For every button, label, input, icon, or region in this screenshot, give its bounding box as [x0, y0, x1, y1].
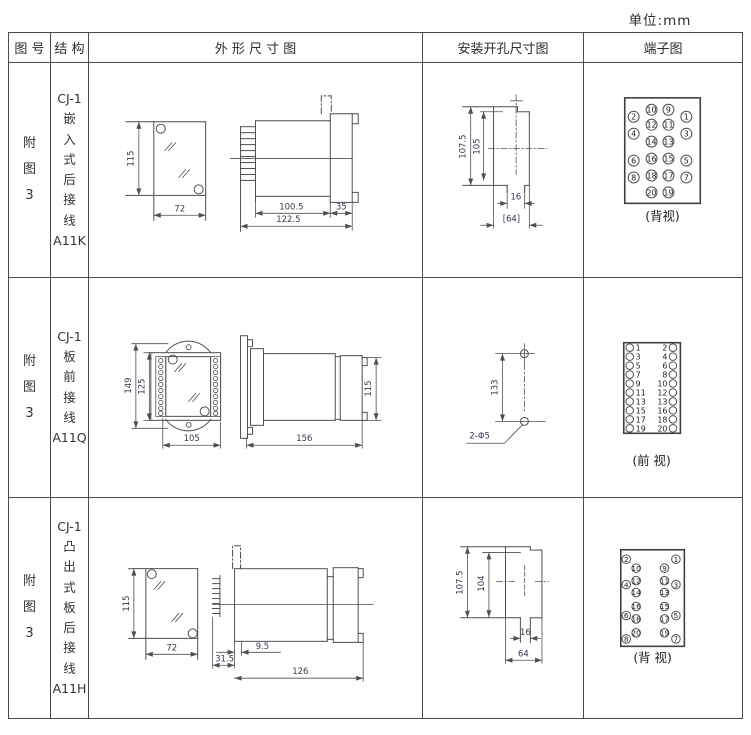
row3-outline-diagram: 115 72: [89, 498, 422, 718]
pin-number: 8: [631, 173, 636, 182]
centerline-bracket: [321, 96, 331, 114]
dim-label-133: 133: [490, 379, 500, 395]
pin-number: 20: [657, 424, 667, 433]
pin-number: 9: [662, 564, 667, 573]
dim-label-9-5: 9.5: [256, 641, 269, 651]
pin-number: 19: [636, 424, 646, 433]
terminal-pins: 2 1 10 9 12 11 4 3 14 13 16 15 6 5 18 17: [622, 555, 680, 644]
dim-label-107-5: 107.5: [458, 135, 468, 159]
dim-label-115: 115: [125, 150, 135, 166]
dim-label-72: 72: [174, 203, 185, 213]
dim-label-72: 72: [166, 642, 177, 652]
pin-number: 15: [636, 406, 646, 415]
terminal-block-outline: [621, 550, 685, 647]
row3-structure: CJ-1 凸 出 式 板 后 接 线 A11H: [51, 498, 89, 719]
row3-side-view: 9.5 31.5 126: [213, 546, 374, 681]
row1-install-diagram: 107.5 105 16 [64]: [423, 63, 583, 277]
row2-holes-view: 133 2-Φ5: [467, 344, 546, 444]
row3-install-cell: 107.5 104 16 64: [423, 498, 584, 719]
dim-label-115: 115: [363, 380, 373, 396]
row3-cutout-view: 107.5 104 16 64: [455, 547, 548, 663]
pin-comb-icon: [213, 579, 220, 614]
dim-label-105: 105: [184, 433, 200, 443]
pin-number: 5: [674, 611, 679, 620]
pin-number: 12: [647, 121, 657, 130]
row3-install-diagram: 107.5 104 16 64: [423, 498, 583, 718]
screw-hole-icon: [200, 407, 209, 416]
pin-number: 4: [624, 580, 629, 589]
pin-number: 11: [660, 576, 670, 585]
terminal-pins: 10 9 2 1 12 11 4 3 14 13 16 15 6 5 18 17: [628, 104, 692, 198]
view-label: (背视): [645, 208, 680, 223]
pin-number: 18: [647, 171, 657, 180]
pin-number: 7: [636, 371, 641, 380]
pin-number: 11: [636, 388, 646, 397]
dim-label-31-5: 31.5: [215, 654, 234, 664]
pin-number: 16: [657, 406, 667, 415]
pin-number: 10: [657, 379, 667, 388]
dim-label-35: 35: [336, 201, 347, 211]
row1-outline-cell: 115 72: [89, 63, 423, 278]
pin-number: 17: [636, 415, 646, 424]
dim-label-115: 115: [121, 595, 131, 611]
pin-number: 20: [647, 188, 657, 197]
pin-number: 2: [624, 555, 629, 564]
pin-number: 15: [663, 154, 673, 163]
dim-label-16: 16: [520, 627, 531, 637]
row1-terminal-cell: 10 9 2 1 12 11 4 3 14 13 16 15 6 5 18 17: [584, 63, 743, 278]
row2-install-diagram: 133 2-Φ5: [423, 278, 583, 497]
view-label: (前 视): [632, 453, 670, 468]
pin-number: 8: [624, 635, 629, 644]
dim-label-64: [64]: [503, 214, 520, 224]
row1-terminal-diagram: 10 9 2 1 12 11 4 3 14 13 16 15 6 5 18 17: [584, 63, 742, 277]
pin-number: 2: [662, 344, 667, 353]
manual-page: 单位:mm 图 号 结 构 外 形 尺 寸 图 安装开孔尺寸图 端子图 附 图 …: [0, 0, 751, 735]
row2-install-cell: 133 2-Φ5: [423, 278, 584, 498]
pin-number: 6: [631, 156, 636, 165]
pin-number: 19: [663, 188, 673, 197]
pin-number: 10: [647, 106, 657, 115]
pin-number: 4: [631, 130, 636, 139]
pin-number: 14: [631, 588, 641, 597]
dim-label-100-5: 100.5: [279, 201, 303, 211]
pin-number: 1: [674, 555, 679, 564]
dim-label-16: 16: [511, 191, 522, 201]
row1-structure: CJ-1 嵌 入 式 后 接 线 A11K: [51, 63, 89, 278]
pin-number: 7: [684, 173, 689, 182]
row1-outline-diagram: 115 72: [89, 63, 422, 277]
terminal-block-outline: [624, 343, 681, 434]
header-outline: 外 形 尺 寸 图: [89, 33, 423, 63]
spec-table: 图 号 结 构 外 形 尺 寸 图 安装开孔尺寸图 端子图 附 图 3 CJ-1…: [8, 32, 743, 719]
glass-hatch-icon: [165, 143, 190, 178]
row3-terminal-cell: 2 1 10 9 12 11 4 3 14 13 16 15 6 5 18 17: [584, 498, 743, 719]
pin-number: 13: [663, 138, 673, 147]
pin-number: 9: [666, 106, 671, 115]
pin-number: 19: [660, 629, 670, 638]
row2-terminal-diagram: 12 34 56 78 910 1112 1313 1516 1718 1920…: [584, 278, 742, 497]
dim-label-105: 105: [472, 139, 482, 155]
row3-outline-cell: 115 72: [89, 498, 423, 719]
pin-number: 12: [631, 576, 640, 585]
row1-side-view: 100.5 35 122.5: [231, 96, 359, 231]
dim-label-126: 126: [292, 666, 308, 676]
header-structure: 结 构: [51, 33, 89, 63]
pin-number: 7: [674, 635, 679, 644]
row2-front-view: 149 125 105: [123, 341, 221, 448]
row2-outline-diagram: 149 125 105: [89, 278, 422, 497]
view-label: (背 视): [633, 650, 671, 665]
row1-cutout-view: 107.5 105 16 [64]: [458, 95, 547, 228]
dim-label-149: 149: [123, 377, 133, 393]
pin-number: 1: [684, 113, 689, 122]
pin-number: 17: [663, 171, 673, 180]
dim-label-104: 104: [476, 576, 486, 592]
row2-terminal-cell: 12 34 56 78 910 1112 1313 1516 1718 1920…: [584, 278, 743, 498]
row2-fig-no: 附 图 3: [9, 278, 51, 498]
pin-number: 13: [636, 397, 646, 406]
pin-number: 2: [631, 113, 636, 122]
dim-label-122-5: 122.5: [276, 214, 300, 224]
row2-side-view: 115 156: [241, 336, 382, 448]
header-terminal: 端子图: [584, 33, 743, 63]
pin-number: 15: [660, 602, 670, 611]
hole-spec-label: 2-Φ5: [469, 430, 489, 440]
screw-hole-icon: [156, 124, 165, 133]
glass-hatch-icon: [154, 582, 183, 622]
row1-install-cell: 107.5 105 16 [64]: [423, 63, 584, 278]
dim-label-125: 125: [136, 378, 146, 394]
dim-label-107-5: 107.5: [455, 571, 465, 595]
row1-fig-no: 附 图 3: [9, 63, 51, 278]
pin-number: 4: [662, 353, 667, 362]
pin-number: 3: [684, 130, 689, 139]
pin-number: 3: [674, 580, 679, 589]
screw-hole-icon: [147, 570, 156, 579]
pin-number: 14: [647, 138, 657, 147]
pin-number: 13: [657, 397, 667, 406]
header-fig-no: 图 号: [9, 33, 51, 63]
glass-hatch-icon: [175, 364, 200, 402]
row3-front-view: 115 72: [121, 569, 198, 660]
pin-number: 9: [636, 379, 641, 388]
pin-number: 13: [660, 588, 670, 597]
pin-number: 11: [663, 121, 673, 130]
row3-terminal-diagram: 2 1 10 9 12 11 4 3 14 13 16 15 6 5 18 17: [584, 498, 742, 718]
row3-fig-no: 附 图 3: [9, 498, 51, 719]
pin-number: 16: [631, 602, 641, 611]
row2-structure: CJ-1 板 前 接 线 A11Q: [51, 278, 89, 498]
pin-number: 5: [636, 362, 641, 371]
header-install: 安装开孔尺寸图: [423, 33, 584, 63]
dim-label-156: 156: [296, 433, 312, 443]
pin-number: 17: [660, 615, 670, 624]
pin-number: 5: [684, 156, 689, 165]
screw-hole-icon: [188, 629, 197, 638]
row2-outline-cell: 149 125 105: [89, 278, 423, 498]
pin-number: 18: [631, 615, 641, 624]
pin-number: 16: [647, 154, 657, 163]
screw-hole-icon: [194, 185, 203, 194]
terminal-strip-icon: [159, 358, 218, 415]
row1-front-view: 115 72: [125, 122, 205, 221]
pin-number: 3: [636, 353, 641, 362]
centerline-bracket: [233, 546, 241, 569]
unit-label: 单位:mm: [585, 9, 735, 29]
pin-number: 18: [657, 415, 667, 424]
pin-comb-icon: [241, 127, 256, 181]
terminal-pins: 12 34 56 78 910 1112 1313 1516 1718 1920: [626, 344, 677, 434]
pin-number: 6: [624, 611, 629, 620]
pin-number: 12: [657, 388, 667, 397]
dim-label-64: 64: [518, 648, 529, 658]
pin-number: 8: [662, 371, 667, 380]
pin-number: 6: [662, 362, 667, 371]
pin-number: 1: [636, 344, 641, 353]
pin-number: 20: [631, 629, 641, 638]
pin-number: 10: [631, 564, 641, 573]
